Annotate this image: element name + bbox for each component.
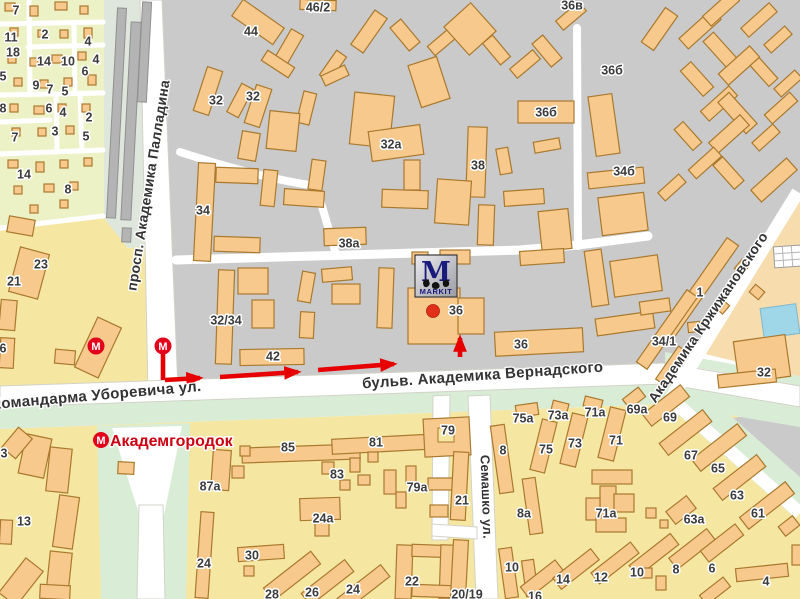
building bbox=[214, 236, 260, 253]
building-label: 3 bbox=[52, 125, 59, 139]
building-label: 32 bbox=[209, 94, 223, 108]
building bbox=[46, 447, 72, 493]
building-label: 8а bbox=[517, 507, 532, 521]
building-label: 14 bbox=[17, 168, 31, 182]
building-label: 38 bbox=[471, 159, 485, 173]
building-label: 6 bbox=[46, 102, 53, 116]
building bbox=[54, 349, 75, 365]
building bbox=[382, 189, 429, 209]
building-label: 12 bbox=[594, 571, 608, 585]
building-label: 7 bbox=[12, 131, 19, 145]
building-label: 10 bbox=[630, 566, 644, 580]
building-label: 63а bbox=[684, 513, 706, 527]
building-label: 71а bbox=[585, 406, 607, 420]
building bbox=[84, 158, 92, 166]
building bbox=[404, 160, 420, 190]
building-label: 4 bbox=[763, 575, 770, 589]
road-side-2 bbox=[432, 524, 477, 539]
building-label: 7 bbox=[47, 83, 54, 97]
building-label: 75 bbox=[539, 443, 553, 457]
building-label: 36б bbox=[601, 64, 623, 78]
building-label: 7 bbox=[13, 4, 20, 18]
building bbox=[78, 52, 86, 60]
pool bbox=[760, 304, 800, 339]
building bbox=[430, 505, 448, 517]
building-label: 46/2 bbox=[306, 1, 330, 15]
building-label: 36 bbox=[514, 338, 528, 352]
building-label: 67 bbox=[684, 449, 698, 463]
building bbox=[614, 494, 634, 512]
building bbox=[55, 2, 67, 10]
building bbox=[435, 179, 472, 225]
building bbox=[66, 126, 74, 134]
road-side-1 bbox=[432, 395, 450, 540]
building-label: 8 bbox=[0, 102, 7, 116]
tram-building bbox=[122, 228, 132, 242]
building-label: 61 bbox=[751, 507, 765, 521]
building bbox=[520, 248, 565, 265]
building-label: 5 bbox=[83, 130, 90, 144]
building bbox=[283, 189, 324, 208]
building bbox=[299, 312, 314, 339]
building bbox=[395, 545, 413, 599]
building-label: 30 bbox=[245, 549, 259, 563]
building-label: 71 bbox=[609, 434, 623, 448]
logo-text: MARKIT bbox=[420, 287, 453, 296]
building-label: 87а bbox=[200, 480, 222, 494]
street-nw bbox=[56, 95, 57, 150]
building-label: 24а bbox=[313, 512, 335, 526]
building bbox=[598, 192, 648, 235]
building bbox=[358, 475, 370, 485]
metro-station-name: Академгородок bbox=[110, 433, 234, 450]
metro-station[interactable]: М bbox=[88, 338, 105, 355]
building bbox=[494, 328, 583, 357]
building bbox=[792, 545, 800, 565]
building bbox=[80, 6, 88, 14]
building bbox=[266, 111, 300, 152]
grid-building-body bbox=[773, 245, 800, 268]
destination-dot[interactable] bbox=[427, 305, 440, 318]
building-label: 4 bbox=[60, 106, 67, 120]
building-label: 21 bbox=[455, 494, 469, 508]
building-label: 24 bbox=[346, 583, 360, 597]
road-inner-b bbox=[577, 28, 578, 246]
building-label: 4 bbox=[85, 35, 92, 49]
building-label: 38а bbox=[339, 237, 361, 251]
building-label: 79 bbox=[441, 424, 455, 438]
building-label: 36б bbox=[535, 106, 557, 120]
building-label: 85 bbox=[281, 441, 295, 455]
markit-logo-marker[interactable]: MMARKIT bbox=[415, 255, 457, 297]
building-label: 28 bbox=[265, 588, 279, 599]
building-label: 16 bbox=[528, 590, 542, 599]
building bbox=[240, 446, 250, 456]
building-label: 42 bbox=[266, 350, 280, 364]
building bbox=[321, 267, 352, 283]
building bbox=[377, 268, 394, 328]
building-label: 32/34 bbox=[210, 314, 241, 328]
building bbox=[332, 284, 360, 304]
building-label: 2 bbox=[42, 28, 49, 42]
building-label: 71а bbox=[596, 507, 618, 521]
building-label: 73а bbox=[548, 409, 570, 423]
building-label: 3 bbox=[1, 447, 8, 461]
building bbox=[40, 584, 71, 599]
metro-letter: М bbox=[158, 341, 167, 353]
building-label: 5 bbox=[0, 70, 7, 84]
building-label: 69а bbox=[627, 403, 649, 417]
building bbox=[610, 255, 663, 297]
building bbox=[396, 492, 406, 508]
building-label: 83 bbox=[330, 468, 344, 482]
building-label: 2 bbox=[86, 111, 93, 125]
building-label: 81 bbox=[369, 436, 383, 450]
building bbox=[252, 300, 274, 328]
building-label: 4 bbox=[93, 53, 100, 67]
building-label: 9 bbox=[33, 79, 40, 93]
building-label: 13 bbox=[17, 515, 31, 529]
building bbox=[60, 160, 68, 168]
metro-station-akademgorodok[interactable]: МАкадемгородок bbox=[93, 432, 234, 450]
street-label: Семашко ул. bbox=[478, 455, 496, 540]
building-label: 32а bbox=[381, 138, 403, 152]
building bbox=[384, 470, 396, 494]
building-label: 32 bbox=[757, 366, 771, 380]
grid-building bbox=[773, 245, 800, 268]
building bbox=[656, 576, 666, 590]
building bbox=[592, 470, 632, 484]
building-label: 34/1 bbox=[652, 335, 676, 349]
building bbox=[450, 452, 469, 521]
building-label: 32 bbox=[246, 90, 260, 104]
building-label: 6 bbox=[0, 342, 7, 356]
building-label: 69 bbox=[663, 411, 677, 425]
building bbox=[14, 78, 22, 86]
building-label: 20/19 bbox=[451, 588, 482, 599]
building bbox=[118, 462, 135, 475]
building bbox=[244, 566, 254, 576]
building bbox=[646, 508, 656, 518]
building bbox=[60, 200, 68, 208]
building-label: 79а bbox=[407, 481, 429, 495]
building-label: 6 bbox=[82, 65, 89, 79]
building-label: 34 bbox=[196, 204, 210, 218]
building bbox=[238, 268, 268, 294]
building-label: 34б bbox=[613, 165, 635, 179]
building-label: 26 bbox=[305, 586, 319, 599]
building bbox=[660, 520, 668, 528]
building-label: 75а bbox=[513, 412, 535, 426]
metro-letter: М bbox=[96, 435, 105, 447]
building bbox=[60, 30, 68, 38]
building bbox=[504, 189, 545, 207]
building-label: 18 bbox=[6, 46, 20, 60]
building bbox=[428, 478, 454, 490]
building bbox=[14, 186, 22, 194]
building-label: 8 bbox=[673, 563, 680, 577]
building-label: 8 bbox=[500, 444, 507, 458]
building bbox=[340, 480, 350, 490]
road-akademgorodok bbox=[137, 505, 165, 599]
building-label: 8 bbox=[65, 183, 72, 197]
city-map[interactable]: МММАкадемгородокMMARKIT 46/244323232а383… bbox=[0, 0, 800, 599]
building bbox=[30, 6, 38, 16]
map-canvas[interactable]: МММАкадемгородокMMARKIT 46/244323232а383… bbox=[0, 0, 800, 599]
building-label: 24 bbox=[197, 557, 211, 571]
street-nw bbox=[28, 45, 103, 47]
building bbox=[232, 466, 244, 478]
building bbox=[30, 205, 38, 213]
building-label: 23 bbox=[34, 258, 48, 272]
building bbox=[36, 162, 44, 172]
building-label: 14 bbox=[37, 55, 51, 69]
building bbox=[538, 209, 572, 252]
street-nw bbox=[0, 22, 103, 24]
building bbox=[88, 75, 96, 85]
building-label: 44 bbox=[244, 25, 258, 39]
building-label: 22 bbox=[405, 575, 419, 589]
building-label: 21 bbox=[7, 275, 21, 289]
building bbox=[0, 520, 13, 545]
metro-station[interactable]: М bbox=[155, 338, 172, 355]
building bbox=[34, 106, 44, 114]
street-nw bbox=[0, 120, 50, 122]
building bbox=[216, 167, 258, 183]
building-label: 63 bbox=[730, 489, 744, 503]
building-label: 10 bbox=[505, 561, 519, 575]
building bbox=[38, 128, 46, 136]
building bbox=[477, 205, 494, 246]
building-label: 14 bbox=[556, 573, 570, 587]
building bbox=[260, 169, 278, 206]
building-label: 65 bbox=[711, 462, 725, 476]
building-label: 1 bbox=[697, 286, 704, 300]
building bbox=[350, 458, 360, 472]
building-label: 36 bbox=[449, 304, 463, 318]
building bbox=[10, 104, 18, 112]
building-label: 5 bbox=[62, 85, 69, 99]
building-label: 10 bbox=[61, 55, 75, 69]
building-label: 6 bbox=[709, 562, 716, 576]
building bbox=[368, 452, 378, 462]
metro-letter: М bbox=[91, 341, 100, 353]
building bbox=[44, 184, 54, 192]
building-label: 36в bbox=[561, 0, 583, 13]
building-label: 73 bbox=[568, 437, 582, 451]
building-label: 11 bbox=[4, 31, 17, 45]
building bbox=[0, 299, 17, 330]
